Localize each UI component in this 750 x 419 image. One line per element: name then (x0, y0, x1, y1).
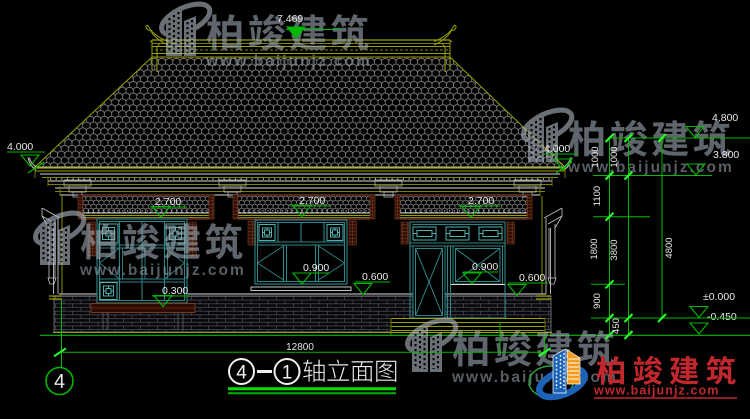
svg-text:4.000: 4.000 (544, 143, 570, 155)
svg-text:12800: 12800 (286, 342, 314, 353)
svg-text:4.000: 4.000 (7, 141, 33, 153)
svg-text:0.900: 0.900 (303, 262, 329, 274)
svg-text:1800: 1800 (589, 238, 600, 259)
svg-text:1: 1 (282, 363, 293, 384)
svg-text:-0.450: -0.450 (707, 311, 737, 323)
svg-text:4: 4 (54, 371, 65, 393)
svg-text:0.900: 0.900 (472, 261, 498, 273)
svg-text:2.700: 2.700 (468, 195, 494, 207)
svg-text:450: 450 (611, 318, 622, 334)
svg-text:www.baijunjz.com: www.baijunjz.com (593, 384, 719, 398)
svg-text:3.800: 3.800 (713, 149, 739, 161)
svg-text:0.600: 0.600 (519, 272, 545, 284)
svg-text:4800: 4800 (664, 237, 675, 258)
svg-text:4: 4 (236, 363, 247, 384)
svg-text:900: 900 (592, 293, 603, 309)
svg-text:±0.000: ±0.000 (703, 291, 735, 303)
svg-text:1000: 1000 (609, 146, 620, 167)
svg-text:7.469: 7.469 (277, 13, 303, 25)
svg-text:1000: 1000 (590, 146, 601, 167)
svg-text:4.800: 4.800 (712, 112, 738, 124)
svg-text:0.600: 0.600 (362, 271, 388, 283)
svg-text:1100: 1100 (592, 186, 603, 206)
svg-text:3800: 3800 (609, 239, 620, 260)
